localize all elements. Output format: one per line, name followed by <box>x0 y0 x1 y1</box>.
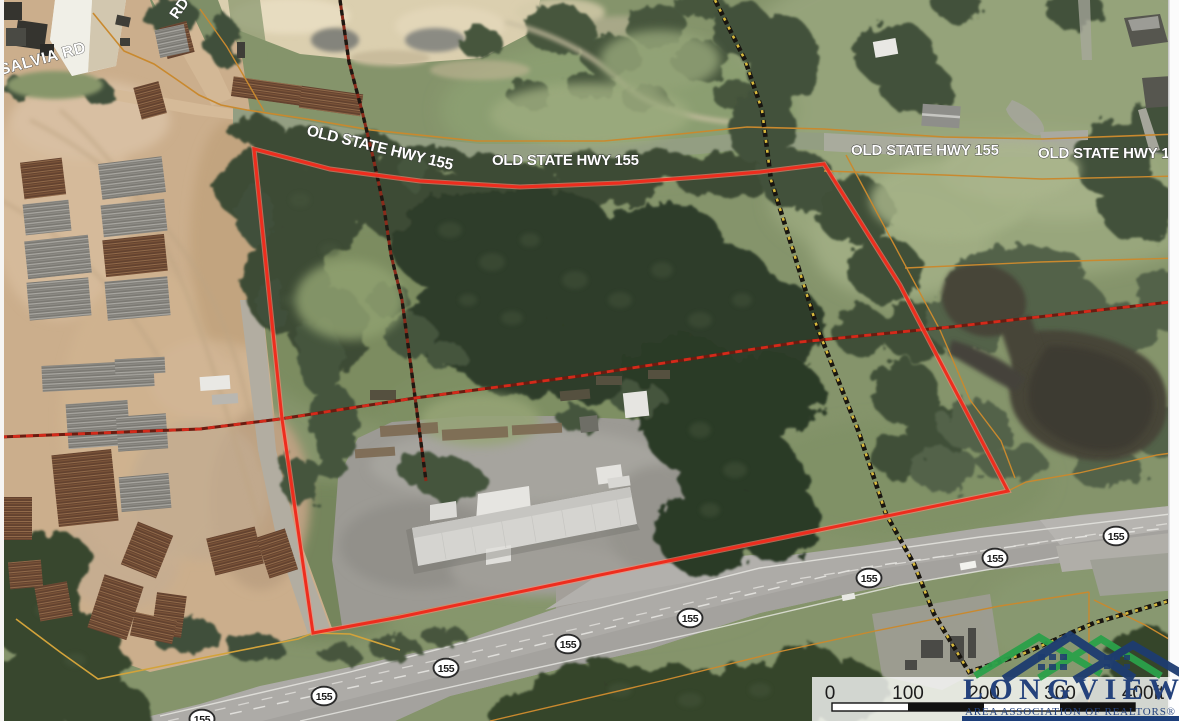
svg-text:OLD STATE HWY 155: OLD STATE HWY 155 <box>1038 145 1179 162</box>
svg-text:100: 100 <box>892 683 924 704</box>
svg-text:155: 155 <box>987 553 1004 565</box>
svg-text:155: 155 <box>316 691 333 703</box>
svg-text:OLD STATE HWY 155: OLD STATE HWY 155 <box>851 142 999 159</box>
svg-text:155: 155 <box>861 573 878 585</box>
svg-text:155: 155 <box>438 663 455 675</box>
svg-text:155: 155 <box>560 639 577 651</box>
svg-text:155: 155 <box>1108 531 1125 543</box>
svg-text:155: 155 <box>682 613 699 625</box>
svg-text:OLD STATE HWY 155: OLD STATE HWY 155 <box>492 152 639 169</box>
svg-text:0: 0 <box>825 683 836 704</box>
svg-text:155: 155 <box>194 714 211 721</box>
